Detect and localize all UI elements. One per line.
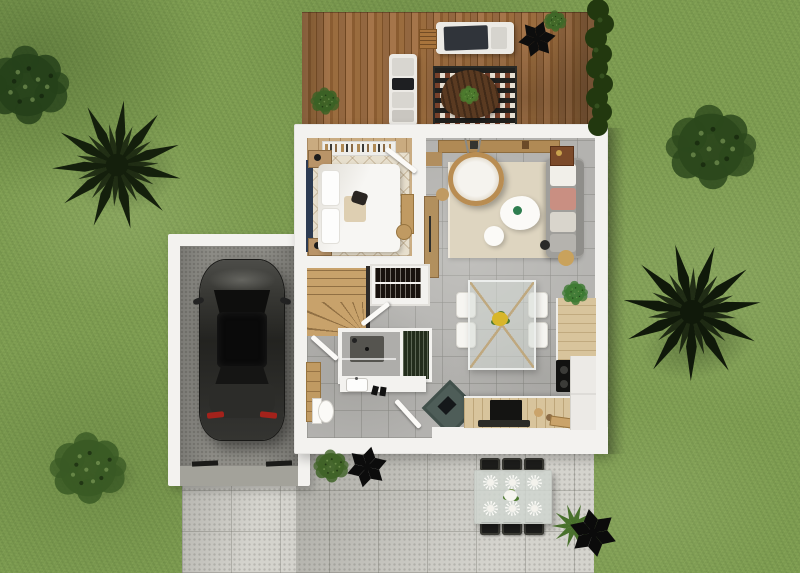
place-setting bbox=[505, 501, 520, 516]
toilet-bowl bbox=[318, 400, 334, 423]
burner bbox=[560, 380, 568, 388]
deck-table-plant bbox=[456, 82, 482, 108]
shower-drain bbox=[365, 347, 369, 351]
shower-glass bbox=[342, 358, 396, 360]
driveway-shadow bbox=[182, 486, 296, 573]
sink bbox=[346, 378, 368, 392]
side-table-decor bbox=[556, 150, 562, 156]
floor-lamp bbox=[540, 240, 550, 250]
bath-closet bbox=[400, 328, 432, 382]
side-table bbox=[550, 146, 574, 166]
faucet bbox=[355, 377, 358, 380]
hanging-clothes bbox=[325, 144, 391, 152]
fridge bbox=[570, 356, 596, 430]
bed-pillow bbox=[321, 170, 340, 206]
bedroom-basket bbox=[396, 224, 412, 240]
place-setting bbox=[483, 475, 498, 490]
sofa-cushion-dark bbox=[444, 25, 489, 51]
sofa-pillow bbox=[392, 92, 414, 108]
palm-tree-left bbox=[42, 90, 192, 240]
wardrobe-shelf bbox=[375, 284, 421, 298]
table-centerpiece bbox=[504, 490, 517, 501]
hedge-right-of-deck bbox=[584, 2, 618, 136]
bed-pillow bbox=[321, 208, 340, 244]
kitchen-sink bbox=[478, 420, 530, 427]
stairs-upper bbox=[307, 268, 367, 302]
sofa-pillow bbox=[392, 58, 414, 76]
wardrobe-shelf bbox=[375, 268, 421, 282]
car bbox=[200, 260, 284, 440]
wall-console bbox=[438, 140, 560, 153]
sofa-pillow-black bbox=[392, 78, 414, 90]
sofa-cushion bbox=[550, 212, 576, 232]
hanging-chair bbox=[448, 152, 504, 206]
console-item bbox=[522, 141, 529, 149]
place-setting bbox=[505, 475, 520, 490]
place-setting bbox=[527, 475, 542, 490]
car-rear-window bbox=[213, 366, 271, 386]
car-hood bbox=[208, 268, 276, 292]
sofa-pillow bbox=[392, 110, 414, 122]
table-lamp bbox=[314, 154, 321, 161]
place-setting bbox=[527, 501, 542, 516]
sofa-backrest bbox=[576, 160, 584, 256]
deck-plant-corner bbox=[540, 6, 570, 36]
shoe bbox=[379, 387, 386, 397]
scene bbox=[0, 0, 800, 573]
console-handle bbox=[429, 216, 431, 252]
counter-bowl bbox=[534, 408, 543, 417]
bush-bottom-left bbox=[38, 418, 138, 518]
bush-top-right bbox=[652, 88, 770, 206]
basket bbox=[436, 188, 449, 201]
deck-side-chair bbox=[419, 29, 437, 49]
palm-tree-right bbox=[612, 232, 772, 392]
corner-shelf bbox=[426, 152, 442, 166]
patio-plant-black bbox=[344, 444, 390, 490]
kitchen-wall-face bbox=[432, 427, 608, 454]
car-roof bbox=[217, 312, 267, 368]
table-decor bbox=[513, 206, 522, 215]
dining-flowers bbox=[492, 312, 508, 326]
sofa-cushion bbox=[550, 164, 576, 186]
place-setting bbox=[483, 501, 498, 516]
deck-plant-green bbox=[306, 82, 344, 120]
corner-plant-black bbox=[566, 506, 620, 560]
burner bbox=[560, 366, 568, 374]
wardrobe bbox=[370, 264, 430, 306]
pouf bbox=[558, 250, 574, 266]
shower-head bbox=[352, 338, 357, 343]
kitchen-plant bbox=[558, 276, 592, 310]
garage-threshold bbox=[180, 466, 298, 486]
sofa-cushion-pink bbox=[550, 188, 576, 210]
sofa-pillow bbox=[491, 27, 507, 49]
coffee-table-small bbox=[484, 226, 504, 246]
